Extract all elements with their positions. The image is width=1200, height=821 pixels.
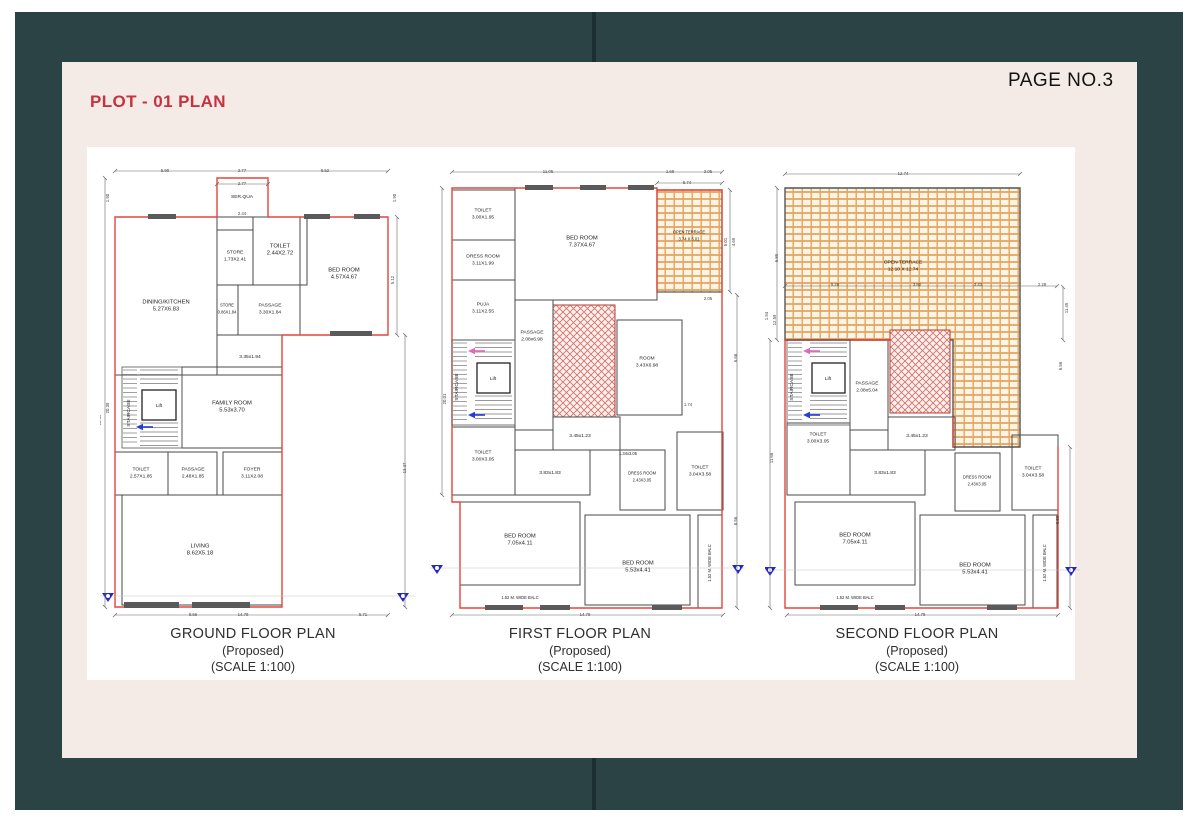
dimension-label: 12.74 (898, 171, 909, 176)
room-label: DRESS ROOM (628, 471, 657, 476)
drawing-sheet-screenshot: { "page": { "title": "PLOT - 01 PLAN", "… (0, 0, 1200, 821)
ground-floor-plan-drawing: 5.902.776.522.772.441.9020.3918.491.905.… (100, 165, 430, 680)
page-title: PLOT - 01 PLAN (90, 92, 226, 112)
room-size-label: 8.62X5.18 (187, 551, 213, 557)
dimension-label: 20.01 (442, 393, 447, 404)
window-sill (330, 331, 372, 336)
dimension-label: 2.05 (704, 169, 713, 174)
room-size-label: 7.37X4.67 (569, 243, 595, 249)
stair-arrow-head (803, 348, 810, 354)
dimension-label: 11.05 (543, 169, 554, 174)
room-size-label: 7.05x4.11 (507, 541, 532, 547)
dimension-label: 1.90 (105, 193, 110, 202)
room-size-label: 1.73X2.41 (224, 257, 247, 263)
room-outline (168, 452, 217, 495)
section-marker-dot (435, 566, 439, 570)
dimension-label: 8.66 (189, 612, 198, 617)
window-sill (540, 605, 570, 610)
window-sill (148, 214, 176, 219)
room-label: ROOM (639, 356, 654, 362)
room-size-label: 7.05x4.11 (842, 540, 867, 546)
first-floor-caption: FIRST FLOOR PLAN (Proposed) (SCALE 1:100… (450, 626, 710, 674)
ground-floor-caption: GROUND FLOOR PLAN (Proposed) (SCALE 1:10… (123, 626, 383, 674)
dimension-label: 2.44 (238, 211, 247, 216)
room-label: TOILET (270, 244, 291, 250)
room-label: 1.52 M. WIDE BALC (501, 595, 538, 600)
room-size-label: 2.43X3.05 (633, 478, 652, 483)
room-size-label: 3.43X6.98 (636, 363, 659, 369)
caption-title: SECOND FLOOR PLAN (787, 626, 1047, 642)
room-label: STAIRCASE (454, 373, 460, 401)
section-marker-dot (736, 566, 740, 570)
caption-proposed: (Proposed) (787, 644, 1047, 658)
room-label: TOILET (474, 208, 491, 214)
room-outline (515, 300, 553, 430)
room-label: PUJA (477, 302, 490, 308)
dimension-label: 13.37 (402, 462, 407, 473)
window-sill (304, 214, 330, 219)
room-size-label: 2.08x5.04 (856, 388, 878, 394)
room-label: BED ROOM (622, 561, 654, 567)
first-floor-plan-drawing: 11.051.692.055.7420.015.014.692.051.746.… (430, 165, 760, 680)
room-outline (677, 432, 723, 510)
room-label: DINING/KITCHEN (142, 300, 189, 306)
room-outline (223, 452, 282, 495)
dimension-label: 5.01 (723, 237, 728, 246)
room-label: OPEN TERRACE (884, 260, 923, 266)
board-fold-line-top (592, 12, 596, 63)
room-label: BED ROOM (959, 563, 991, 569)
dimension-label: 6.56 (733, 353, 738, 362)
dimension-label: 18.49 (100, 414, 102, 425)
dimension-label: 2.77 (238, 181, 247, 186)
dimension-label: 2.77 (238, 168, 247, 173)
dimension-label: 1.69 (666, 169, 675, 174)
dimension-label: 3.80 (913, 282, 922, 287)
window-sill (124, 602, 179, 608)
dimension-label: 11.45 (1064, 302, 1069, 313)
room-label: OPEN TERRACE (673, 230, 705, 235)
stair-arrow-head (468, 412, 475, 418)
dimension-label: 2.28 (1038, 282, 1047, 287)
caption-scale: (SCALE 1:100) (450, 660, 710, 674)
room-label: PASSAGE (181, 467, 205, 473)
dimension-label: 12.59 (772, 314, 777, 325)
room-size-label: 3.30X1.84 (259, 310, 282, 316)
section-marker-dot (106, 594, 110, 598)
dimension-label: 11.66 (769, 452, 774, 463)
room-label: 1.52 M. WIDE BALC (1042, 544, 1047, 581)
room-label: 1.52 M. WIDE BALC (836, 595, 873, 600)
window-sill (485, 605, 523, 610)
dimension-label: 14.79 (580, 612, 591, 617)
room-label: LIVING (190, 544, 209, 550)
room-size-label: 3.00X1.95 (472, 215, 495, 221)
dimension-label: 5.71 (359, 612, 368, 617)
room-size-label: 5.53x4.41 (625, 568, 650, 574)
room-label: Lift (156, 403, 163, 409)
room-size-label: 12.10 X 12.74 (888, 267, 919, 273)
room-size-label: 0.86X1.84 (218, 310, 237, 315)
room-label: FOYER (244, 467, 261, 473)
room-label: PASSAGE (520, 330, 544, 336)
room-outline (920, 515, 1025, 605)
room-size-label: 2.44X2.72 (267, 251, 293, 257)
room-label: BED ROOM (328, 268, 360, 274)
room-size-label: 3.04X3.58 (1022, 473, 1045, 479)
room-label: STORE (220, 303, 234, 308)
window-sill (628, 185, 654, 190)
window-sill (820, 605, 858, 610)
room-outline (115, 452, 168, 495)
window-sill (525, 185, 553, 190)
window-sill (580, 185, 606, 190)
room-label: DRESS ROOM (963, 475, 992, 480)
room-size-label: 3.04X3.58 (689, 472, 712, 478)
stair-arrow-head (803, 412, 810, 418)
room-label: TOILET (132, 467, 149, 473)
room-label: 1.52 M. WIDE BALC (707, 544, 712, 581)
board-fold-line-bottom (592, 757, 596, 810)
caption-scale: (SCALE 1:100) (787, 660, 1047, 674)
caption-title: FIRST FLOOR PLAN (450, 626, 710, 642)
stair-arrow-head (136, 424, 143, 430)
dimension-label: 5.28 (831, 282, 840, 287)
room-label: BED ROOM (839, 533, 871, 539)
dimension-label: 15.12 (765, 452, 766, 463)
room-label: Lift (490, 376, 497, 382)
dimension-label: 5.74 (683, 180, 692, 185)
room-size-label: 3.45x1.23 (569, 433, 591, 439)
double-height-void-area (553, 305, 615, 417)
room-size-label: 3.11X2.55 (472, 309, 494, 315)
dimension-label: 14.79 (238, 612, 249, 617)
room-outline (452, 240, 515, 280)
room-size-label: 5.27X6.83 (153, 307, 179, 313)
window-sill (987, 605, 1017, 610)
room-label: TOILET (474, 450, 491, 456)
room-outline (115, 217, 217, 375)
room-size-label: 2.57X1.85 (130, 474, 153, 480)
room-size-label: 3.11X2.08 (241, 474, 263, 480)
caption-proposed: (Proposed) (450, 644, 710, 658)
room-label: SER.QUA (231, 194, 254, 200)
caption-scale: (SCALE 1:100) (123, 660, 383, 674)
dimension-label: 1.90 (392, 193, 397, 202)
room-label: STAIRCASE (126, 399, 132, 427)
dimension-label: 6.52 (321, 168, 330, 173)
room-size-label: 3.11X1.99 (472, 261, 494, 267)
second-floor-caption: SECOND FLOOR PLAN (Proposed) (SCALE 1:10… (787, 626, 1047, 674)
room-size-label: 2.43X3.05 (968, 482, 987, 487)
dimension-label: 6.89 (774, 253, 779, 262)
page-number: PAGE NO.3 (1008, 70, 1114, 92)
room-size-label: 3.83x1.83 (539, 470, 561, 476)
window-sill (192, 602, 250, 608)
dimension-label: 6.56 (1058, 361, 1063, 370)
dimension-label: 14.79 (915, 612, 926, 617)
room-label: TOILET (691, 465, 708, 471)
double-height-void-area (890, 330, 950, 413)
dimension-label: 1.94 (765, 311, 769, 320)
window-sill (652, 605, 682, 610)
room-label: Lift (825, 376, 832, 382)
room-size-label: 5.53x3.70 (219, 408, 244, 414)
room-label: PASSAGE (258, 303, 282, 309)
room-label: PASSAGE (855, 381, 879, 387)
dimension-label: 4.69 (731, 237, 736, 246)
room-size-label: 3.00X3.05 (807, 439, 830, 445)
room-size-label: 3.74 X 5.01 (679, 237, 701, 242)
caption-proposed: (Proposed) (123, 644, 383, 658)
room-label: TOILET (1024, 466, 1041, 472)
room-label: STAIRCASE (789, 373, 795, 401)
room-label: BED ROOM (566, 236, 598, 242)
window-sill (875, 605, 905, 610)
dimension-label: 1.74 (684, 402, 693, 407)
dimension-label: 2.05 (704, 296, 713, 301)
room-size-label: 5.53x4.41 (962, 570, 987, 576)
room-size-label: 2.08x6.98 (521, 337, 543, 343)
section-marker-dot (401, 594, 405, 598)
room-size-label: 3.35x1.94 (239, 354, 261, 360)
caption-title: GROUND FLOOR PLAN (123, 626, 383, 642)
room-size-label: 4.57X4.67 (331, 275, 357, 281)
room-size-label: 3.00X3.05 (472, 457, 495, 463)
second-floor-plan-drawing: 12.745.283.803.432.286.891.9412.5915.121… (765, 165, 1095, 680)
window-sill (354, 214, 380, 219)
dimension-label: 20.39 (105, 402, 110, 413)
dimension-label: 8.56 (733, 516, 738, 525)
section-marker-dot (1069, 568, 1073, 572)
room-label: FAMILY ROOM (212, 401, 252, 407)
room-size-label: 3.45x1.23 (906, 433, 928, 439)
dimension-label: 5.12 (390, 275, 395, 284)
dimension-label: 3.43 (974, 282, 983, 287)
dimension-label: 8.56 (1055, 515, 1060, 524)
room-size-label: 3.83x1.83 (874, 470, 896, 476)
room-size-label: 1.34x3.05 (619, 451, 638, 456)
room-label: TOILET (809, 432, 826, 438)
dimension-label: 5.90 (161, 168, 170, 173)
stair-arrow-head (468, 348, 475, 354)
room-label: STORE (227, 250, 244, 256)
room-label: DRESS ROOM (466, 254, 499, 260)
room-label: BED ROOM (504, 534, 536, 540)
room-size-label: 2.48X1.85 (182, 474, 205, 480)
